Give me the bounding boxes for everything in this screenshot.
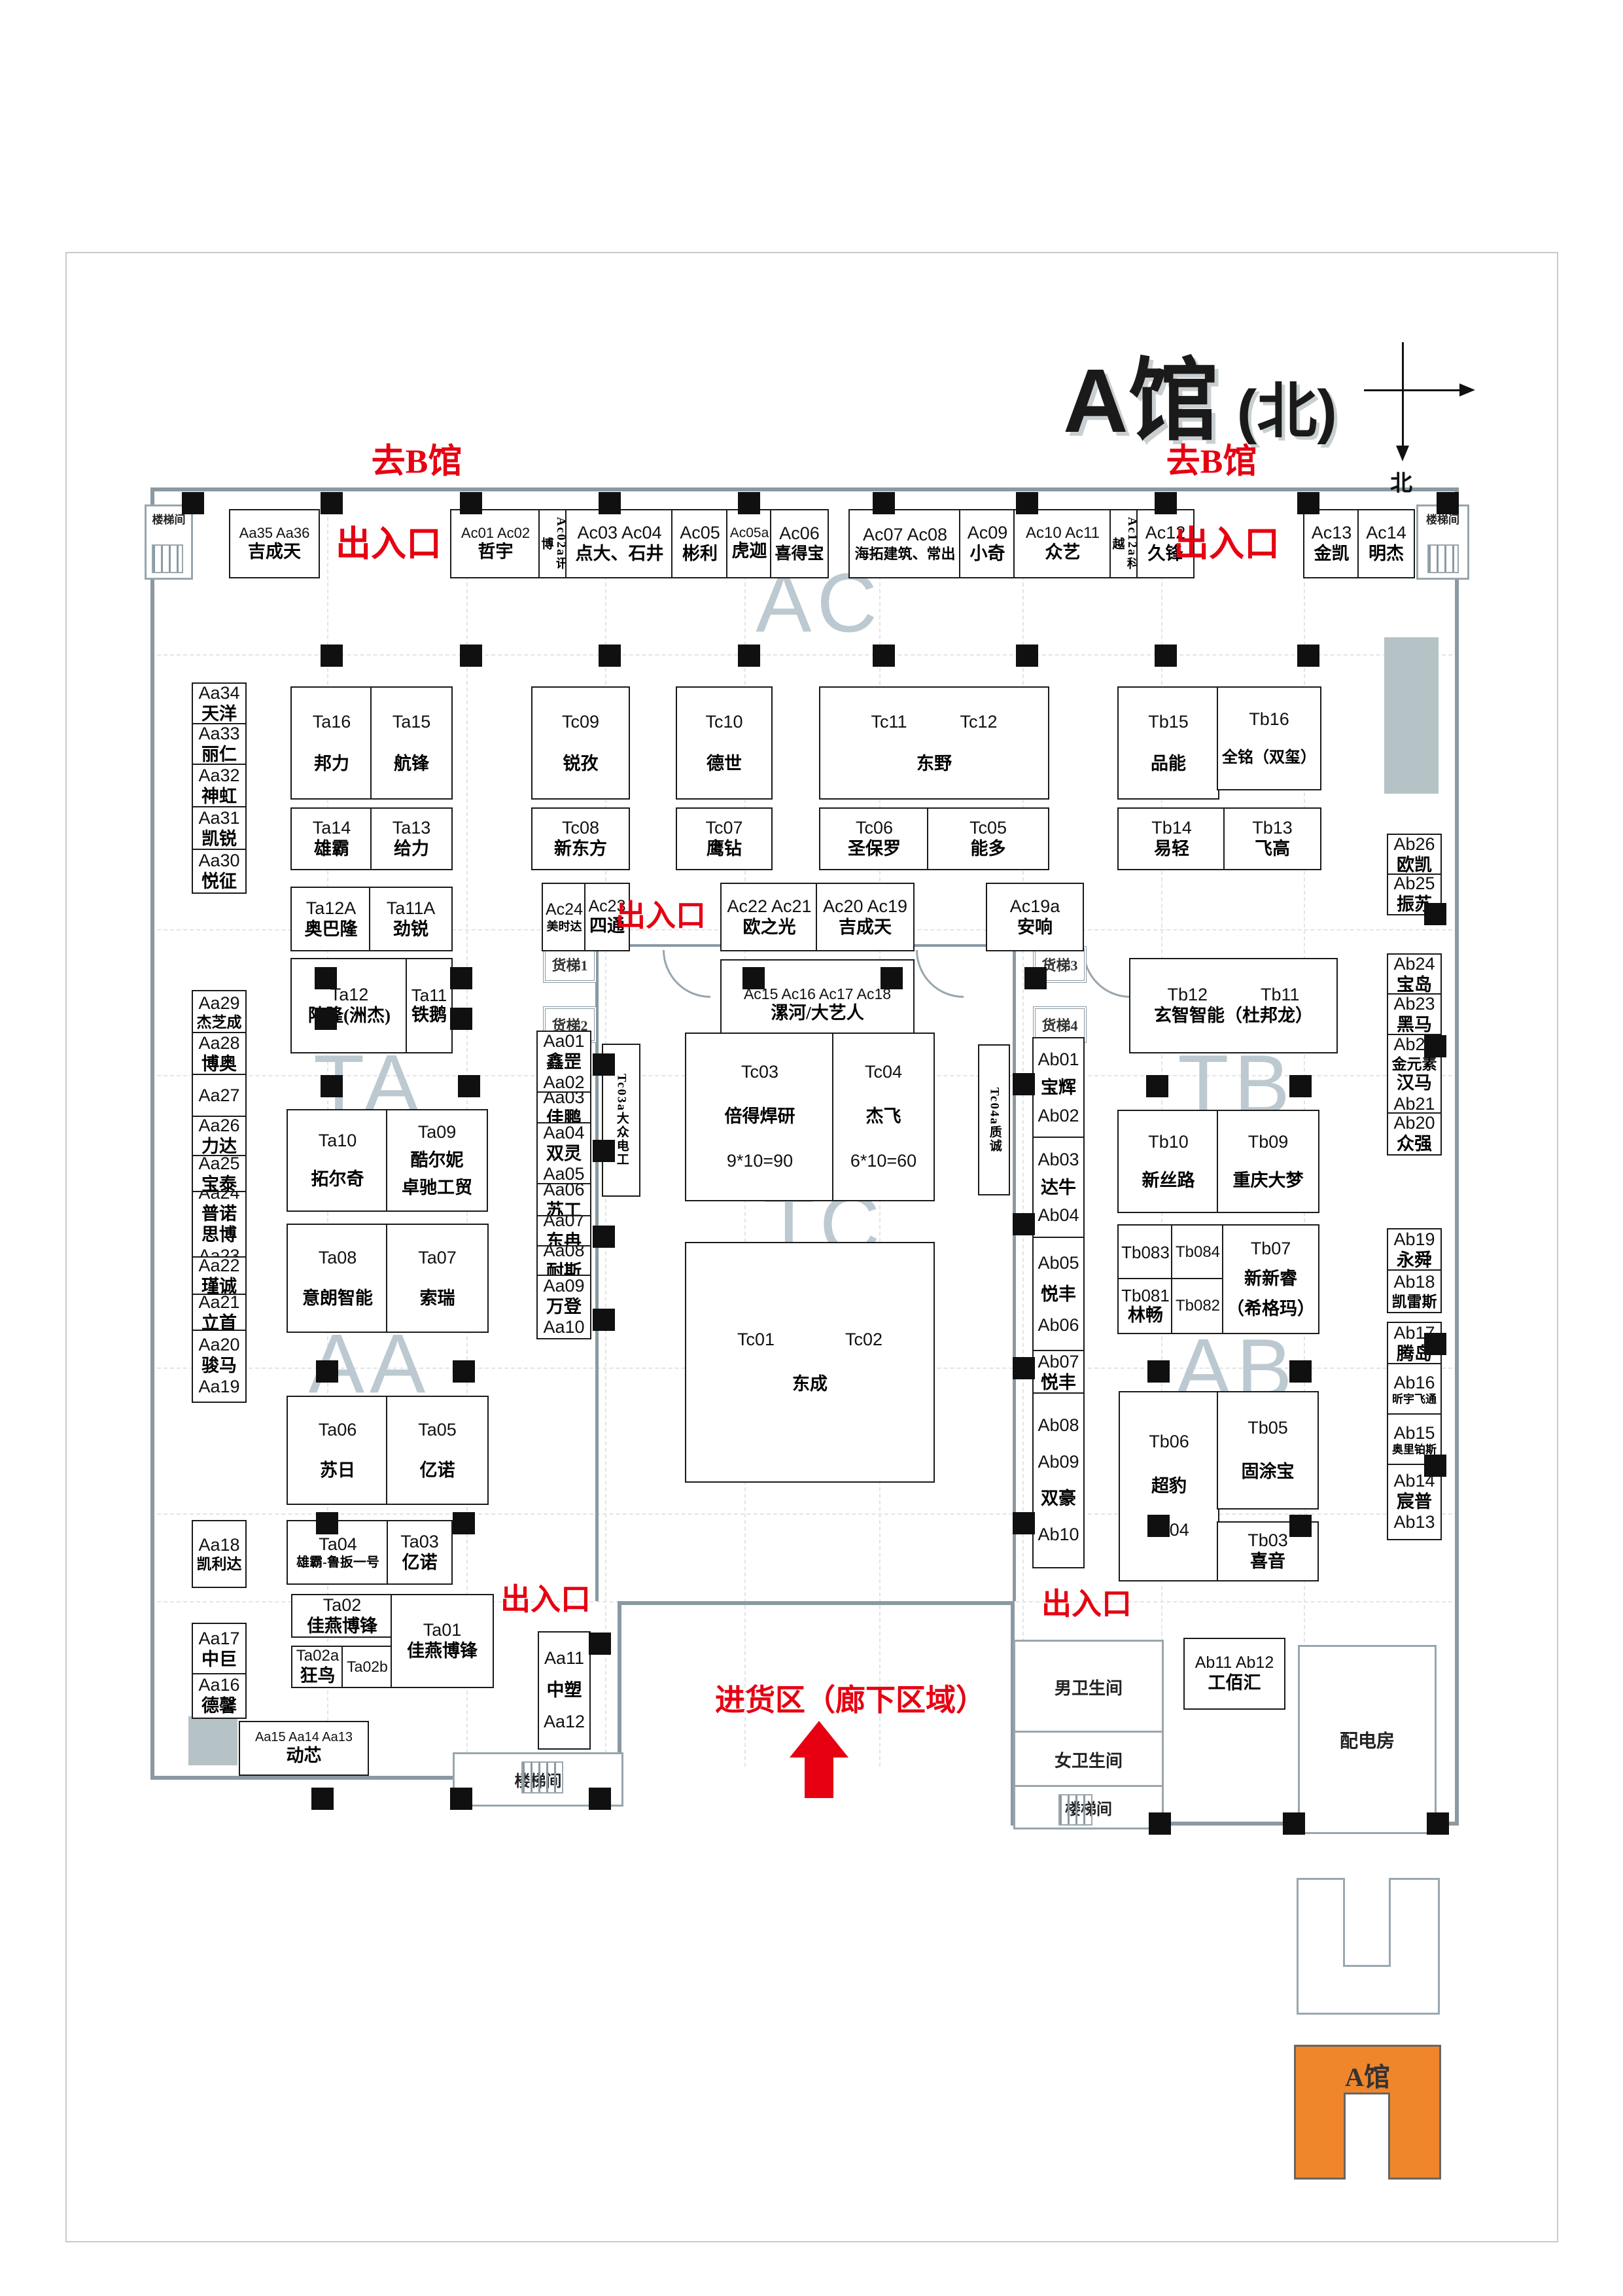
pillar — [321, 1075, 343, 1097]
pillar — [311, 1788, 334, 1810]
pillar — [1013, 1357, 1035, 1379]
booth-tc10: Tc10德世 — [676, 686, 773, 800]
stairwell-top-left-label: 楼梯间 — [152, 510, 186, 527]
booth-ta02: Ta02佳燕博锋 — [291, 1594, 393, 1638]
pillar — [1424, 1455, 1446, 1477]
pillar — [1147, 1515, 1170, 1537]
stairs-icon — [152, 544, 183, 573]
booth-aa27: Aa27 — [192, 1074, 247, 1118]
pillar — [599, 492, 621, 514]
freight-elevator: 货梯1 — [543, 946, 597, 983]
stairs-icon — [1058, 1794, 1092, 1826]
booth-ta08: Ta08意朗智能 — [287, 1224, 389, 1333]
pillar — [742, 967, 765, 989]
booth-ta07: Ta07索瑞 — [386, 1224, 489, 1333]
booth-aa16: Aa16德馨 — [192, 1673, 247, 1719]
booth-aa18: Aa18凯利达 — [192, 1520, 247, 1588]
booth-ab11: Ab11 Ab12工佰汇 — [1183, 1638, 1285, 1710]
booth-ab23: Ab23黑马 — [1387, 993, 1442, 1036]
pillar — [453, 1360, 475, 1383]
wall — [150, 487, 1459, 491]
wall — [1455, 487, 1459, 1826]
booth-ac09: Ac09小奇 — [959, 509, 1016, 578]
booth-aa03: Aa03佳鹏 — [536, 1091, 591, 1125]
booth-ac14: Ac14明杰 — [1357, 509, 1415, 578]
pillar — [1146, 1075, 1168, 1097]
booth-ab07: Ab07悦丰 — [1032, 1350, 1085, 1395]
pillar — [873, 645, 895, 667]
pillar — [1424, 1333, 1446, 1355]
pillar — [738, 645, 760, 667]
compass-horizontal-line — [1364, 389, 1459, 391]
booth-aa29: Aa29杰芝成 — [192, 990, 247, 1034]
booth-ta05: Ta05亿诺 — [386, 1396, 489, 1505]
booth-tb083: Tb083 — [1117, 1224, 1174, 1280]
to-b-hall-right-label: 去B馆 — [1166, 434, 1257, 483]
booth-aa33: Aa33丽仁 — [192, 723, 247, 766]
booth-tb12: Tb12 Tb11玄智智能（杜邦龙） — [1129, 958, 1338, 1053]
booth-ac05a: Ac05a虎迦 — [726, 509, 773, 578]
booth-ac24: Ac24美时达 — [542, 883, 587, 951]
floor-plan-page: A馆 (北) 北 男卫生间女卫生间楼梯间配电房楼梯间楼梯间楼梯间货梯1货梯2货梯… — [0, 0, 1623, 2296]
booth-tb05: Tb05固涂宝 — [1217, 1391, 1319, 1510]
pillar — [1289, 1360, 1312, 1383]
booth-aa21: Aa21立首 — [192, 1294, 247, 1332]
booth-tb06: Tb06超豹Tb04 — [1119, 1391, 1219, 1581]
booth-aa11: Aa11中塑Aa12 — [538, 1631, 591, 1750]
pillar — [1149, 1812, 1171, 1835]
room-power-room: 配电房 — [1298, 1645, 1437, 1834]
booth-ta02a: Ta02a狂鸟 — [291, 1646, 344, 1688]
compass-arrow-north-icon — [1396, 446, 1409, 461]
booth-ab18: Ab18凯雷斯 — [1387, 1269, 1442, 1313]
pillar — [1013, 1073, 1035, 1095]
inset-hall-a-courtyard — [1344, 2093, 1390, 2180]
pillar — [450, 1788, 472, 1810]
booth-tb084: Tb084 — [1171, 1224, 1225, 1280]
loading-area-label: 进货区（廊下区域） — [715, 1676, 986, 1720]
booth-tb15: Tb15品能 — [1117, 686, 1219, 800]
booth-ab03: Ab03达牛Ab04 — [1032, 1137, 1085, 1239]
booth-tb09: Tb09重庆大梦 — [1217, 1110, 1319, 1213]
booth-ta13: Ta13给力 — [370, 807, 453, 870]
pillar — [1013, 1213, 1035, 1235]
booth-aa06: Aa06苏工 — [536, 1183, 591, 1218]
pillar — [1427, 1812, 1449, 1835]
pillar — [593, 1053, 615, 1076]
booth-ta02b: Ta02b — [341, 1646, 393, 1688]
pillar — [593, 1140, 615, 1162]
booth-ta03: Ta03亿诺 — [387, 1520, 453, 1585]
booth-aa30: Aa30悦征 — [192, 849, 247, 894]
booth-aa20: Aa20骏马Aa19 — [192, 1330, 247, 1403]
booth-ac07: Ac07 Ac08海拓建筑、常出 — [848, 509, 962, 578]
entrance-bottom-left-label: 出入口 — [500, 1576, 591, 1619]
pillar — [1013, 1512, 1035, 1534]
inset-hall-b-outline — [1297, 1878, 1440, 2015]
pillar — [1016, 492, 1038, 514]
inset-hall-b-courtyard — [1343, 1878, 1391, 1967]
booth-tc03: Tc03倍得焊研9*10=90 — [685, 1033, 835, 1201]
entrance-bottom-right-label: 出入口 — [1041, 1580, 1132, 1623]
booth-aa08: Aa08耐斯 — [536, 1245, 591, 1277]
booth-ab08: Ab08Ab09双豪Ab10 — [1032, 1392, 1085, 1568]
booth-ac12a: Ac12a科越 — [1109, 509, 1139, 578]
booth-ta12a: Ta12A奥巴隆 — [290, 887, 372, 951]
grid-line — [157, 654, 1452, 656]
pillar — [316, 1360, 338, 1383]
booth-ab26: Ab26欧凯 — [1387, 834, 1442, 876]
booth-tc05: Tc05能多 — [927, 807, 1049, 870]
booth-ab01: Ab01宝辉Ab02 — [1032, 1037, 1085, 1139]
booth-tc04: Tc04杰飞6*10=60 — [832, 1033, 935, 1201]
pillar — [460, 645, 482, 667]
stairs-icon — [1427, 544, 1459, 573]
booth-tc08: Tc08新东方 — [531, 807, 630, 870]
booth-aa15: Aa15 Aa14 Aa13动芯 — [239, 1721, 369, 1776]
compass: 北 — [1364, 337, 1469, 487]
booth-ta01: Ta01佳燕博锋 — [391, 1594, 494, 1688]
booth-ab24: Ab24宝岛 — [1387, 953, 1442, 996]
booth-tc04a: Tc04a质诚 — [978, 1044, 1010, 1195]
booth-ta10: Ta10拓尔奇 — [287, 1109, 389, 1212]
pillar — [738, 492, 760, 514]
booth-tc01: Tc01 Tc02东成 — [685, 1242, 935, 1483]
compass-vertical-line — [1402, 342, 1404, 446]
to-b-hall-left-label: 去B馆 — [372, 434, 462, 483]
power-room-label: 配电房 — [1340, 1727, 1395, 1753]
compass-north-label: 北 — [1390, 465, 1412, 497]
wall — [150, 487, 154, 1780]
entrance-top-right-label: 出入口 — [1174, 515, 1280, 567]
booth-aa22: Aa22瑾诚 — [192, 1256, 247, 1296]
pillar — [1289, 1515, 1312, 1537]
pillar — [599, 645, 621, 667]
pillar — [1289, 1075, 1312, 1097]
booth-aa34: Aa34天洋 — [192, 682, 247, 726]
booth-aa09: Aa09万登Aa10 — [536, 1275, 591, 1339]
pillar — [321, 492, 343, 514]
pillar — [315, 1008, 337, 1030]
pillar — [1147, 1360, 1170, 1383]
booth-tb10: Tb10新丝路 — [1117, 1110, 1219, 1213]
booth-tb16: Tb16全铭（双玺） — [1217, 686, 1321, 790]
entrance-top-left-label: 出入口 — [336, 515, 442, 567]
pillar — [1155, 492, 1177, 514]
booth-aa01: Aa01鑫罡Aa02 — [536, 1031, 591, 1094]
pillar — [321, 645, 343, 667]
booth-ac01: Ac01 Ac02哲宇 — [450, 509, 541, 578]
wall — [595, 945, 599, 1601]
pillar — [453, 1512, 475, 1534]
pillar — [1424, 903, 1446, 925]
booth-ac05: Ac05彬利 — [671, 509, 729, 578]
booth-tb14: Tb14易轻 — [1117, 807, 1226, 870]
pillar — [450, 1008, 472, 1030]
booth-tb081: Tb081林畅 — [1117, 1278, 1174, 1334]
booth-tb082: Tb082 — [1171, 1278, 1225, 1334]
booth-ta11: Ta11铁鹅 — [406, 958, 453, 1053]
restroom-men-label: 男卫生间 — [1055, 1675, 1123, 1699]
pillar — [593, 1309, 615, 1331]
pillar — [873, 492, 895, 514]
pillar — [1024, 967, 1047, 989]
restroom-women-label: 女卫生间 — [1055, 1748, 1123, 1772]
booth-ta06: Ta06苏日 — [287, 1396, 389, 1505]
booth-tc11: Tc11 Tc12东野 — [819, 686, 1049, 800]
compass-arrow-east-icon — [1459, 383, 1475, 397]
booth-aa04: Aa04双灵Aa05 — [536, 1122, 591, 1186]
booth-ac06: Ac06喜得宝 — [770, 509, 829, 578]
booth-aa26: Aa26力达 — [192, 1116, 247, 1157]
booth-tb07: Tb07新新睿（希格玛） — [1222, 1224, 1319, 1334]
wall — [618, 1601, 1015, 1605]
booth-aa31: Aa31凯锐 — [192, 806, 247, 851]
shaded-area — [1384, 637, 1439, 794]
pillar — [450, 967, 472, 989]
pillar — [1424, 1035, 1446, 1057]
booth-ac03: Ac03 Ac04点大、石井 — [565, 509, 674, 578]
booth-tb13: Tb13飞高 — [1223, 807, 1321, 870]
booth-ta15: Ta15航锋 — [370, 686, 453, 800]
inset-hall-a-label: A馆 — [1296, 2056, 1439, 2094]
booth-aa28: Aa28博奥 — [192, 1032, 247, 1076]
pillar — [460, 492, 482, 514]
booth-ac13: Ac13金凯 — [1303, 509, 1360, 578]
booth-ta14: Ta14雄霸 — [290, 807, 373, 870]
booth-tc09: Tc09锐孜 — [531, 686, 630, 800]
grid-line — [157, 1513, 1452, 1515]
booth-ab16: Ab16昕宇飞通 — [1387, 1363, 1442, 1416]
pillar — [1155, 645, 1177, 667]
pillar — [315, 967, 337, 989]
booth-ab20: Ab20众强 — [1387, 1112, 1442, 1156]
shaded-area — [188, 1716, 237, 1765]
booth-aa35: Aa35 Aa36吉成天 — [229, 509, 320, 578]
pillar — [458, 1075, 480, 1097]
booth-ta16: Ta16邦力 — [290, 686, 373, 800]
pillar — [1016, 645, 1038, 667]
booth-ac10: Ac10 Ac11众艺 — [1013, 509, 1112, 578]
inset-hall-a: A馆 — [1294, 2045, 1441, 2180]
pillar — [182, 492, 204, 514]
booth-ta12: Ta12陆隆(洲杰) — [290, 958, 408, 1053]
booth-aa25: Aa25宝泰 — [192, 1155, 247, 1193]
booth-tc06: Tc06圣保罗 — [819, 807, 930, 870]
booth-aa24: Aa24普诺思博Aa23 — [192, 1191, 247, 1259]
booth-ab19: Ab19永舜 — [1387, 1228, 1442, 1272]
pillar — [1297, 492, 1319, 514]
booth-aa32: Aa32神虹 — [192, 764, 247, 809]
stairs-icon — [521, 1761, 563, 1793]
booth-ac02a: Ac02a讯博 — [538, 509, 568, 578]
pillar — [1283, 1812, 1305, 1835]
booth-aa17: Aa17中巨 — [192, 1623, 247, 1676]
loading-area-arrow-icon — [790, 1721, 848, 1798]
entrance-middle-label: 出入口 — [616, 892, 706, 935]
booth-tc07: Tc07鹰钻 — [676, 807, 773, 870]
pillar — [1297, 645, 1319, 667]
pillar — [589, 1788, 611, 1810]
pillar — [589, 1633, 611, 1655]
booth-ab05: Ab05悦丰Ab06 — [1032, 1237, 1085, 1352]
booth-ac22: Ac22 Ac21欧之光 — [720, 883, 818, 951]
booth-ta11a: Ta11A劲锐 — [369, 887, 453, 951]
pillar — [881, 967, 903, 989]
room-restroom-women: 女卫生间 — [1013, 1731, 1164, 1789]
booth-ac19a: Ac19a安响 — [986, 883, 1084, 951]
pillar — [1437, 492, 1459, 514]
room-restroom-men: 男卫生间 — [1013, 1640, 1164, 1735]
booth-ac20: Ac20 Ac19吉成天 — [816, 883, 915, 951]
booth-aa07: Aa07东冉 — [536, 1215, 591, 1248]
pillar — [316, 1512, 338, 1534]
booth-ta09: Ta09酷尔妮卓驰工贸 — [386, 1109, 488, 1212]
wall — [1013, 945, 1016, 1601]
pillar — [593, 1226, 615, 1248]
